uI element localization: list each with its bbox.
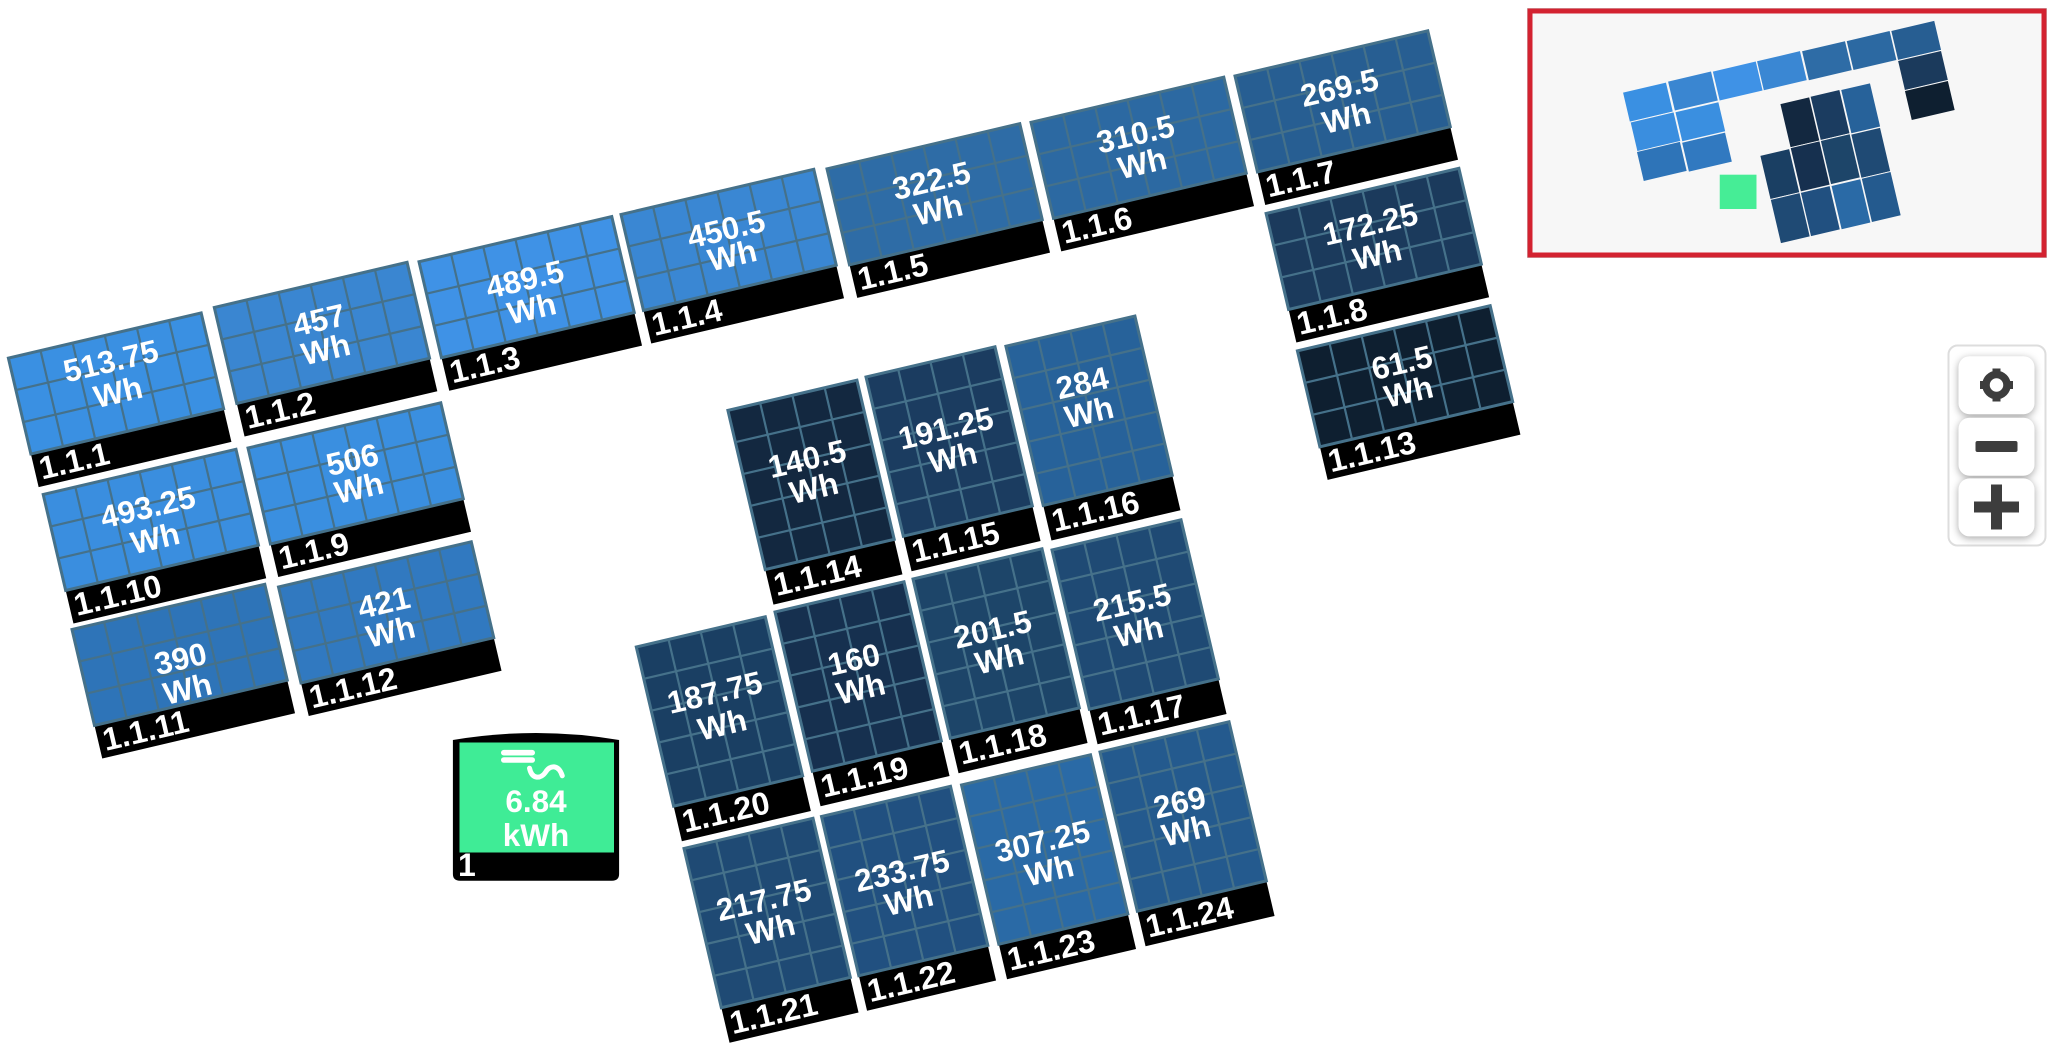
svg-text:kWh: kWh xyxy=(503,817,570,853)
svg-text:6.84: 6.84 xyxy=(505,783,567,819)
svg-text:1: 1 xyxy=(458,847,476,883)
